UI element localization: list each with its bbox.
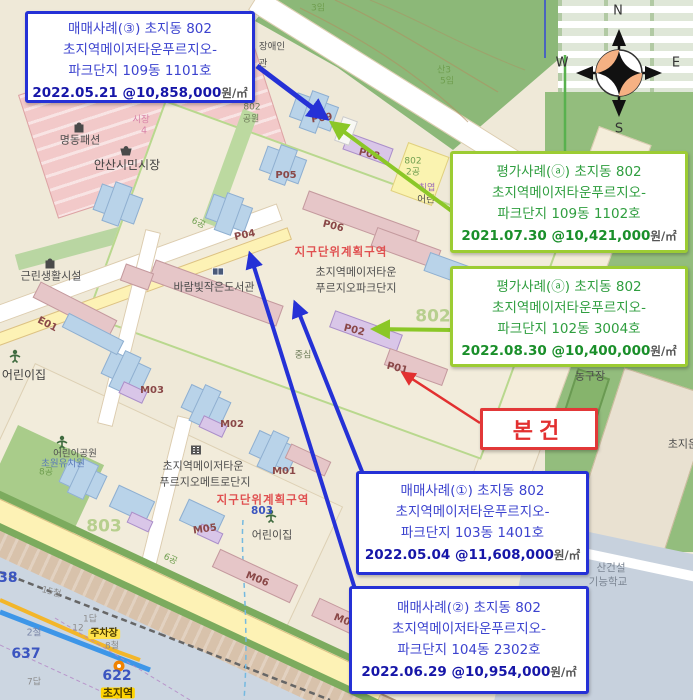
arrow-eval-102: [374, 329, 452, 330]
subject-label: 본건: [513, 413, 565, 445]
callout-line: 초지역메이저타운푸르지오-: [453, 183, 685, 204]
compass-n-label: N: [613, 4, 623, 19]
arrow-eval-109: [332, 123, 453, 212]
callout-eval-102: 평가사례(ⓐ) 초지동 802 초지역메이저타운푸르지오- 파크단지 102동 …: [450, 266, 688, 367]
callout-title: 평가사례(ⓐ) 초지동 802: [453, 162, 685, 183]
callout-line: 초지역메이저타운푸르지오-: [453, 298, 685, 319]
callout-price: 2021.07.30 @10,421,000원/㎡: [453, 225, 685, 247]
callout-title: 매매사례(②) 초지동 802: [352, 598, 586, 619]
compass-e-label: E: [672, 56, 680, 71]
callout-subject: 본건: [480, 408, 598, 450]
arrow-sale3: [257, 66, 326, 118]
callout-line: 파크단지 104동 2302호: [352, 640, 586, 661]
callout-line: 파크단지 109동 1101호: [28, 61, 252, 82]
arrow-sale1: [295, 303, 363, 474]
callout-sale-3: 매매사례(③) 초지동 802 초지역메이저타운푸르지오- 파크단지 109동 …: [25, 11, 255, 103]
compass-w-label: W: [556, 56, 569, 71]
arrow-sale2: [250, 254, 355, 589]
appraisal-map[interactable]: 3임산35임장애인관시장4명동패션안산시민시장802공원P09P08P05P06…: [0, 0, 693, 700]
callout-price: 2022.08.30 @10,400,000원/㎡: [453, 340, 685, 362]
compass-s-label: S: [615, 122, 623, 137]
callout-title: 평가사례(ⓐ) 초지동 802: [453, 277, 685, 298]
callout-line: 초지역메이저타운푸르지오-: [28, 40, 252, 61]
callout-line: 초지역메이저타운푸르지오-: [359, 502, 586, 523]
callout-price: 2022.05.21 @10,858,000원/㎡: [28, 82, 252, 104]
callout-line: 파크단지 102동 3004호: [453, 319, 685, 340]
callout-eval-109: 평가사례(ⓐ) 초지동 802 초지역메이저타운푸르지오- 파크단지 109동 …: [450, 151, 688, 253]
compass-rose-icon: [555, 13, 693, 138]
callout-line: 초지역메이저타운푸르지오-: [352, 619, 586, 640]
callout-title: 매매사례(①) 초지동 802: [359, 481, 586, 502]
callout-line: 파크단지 109동 1102호: [453, 204, 685, 225]
callout-line: 파크단지 103동 1401호: [359, 523, 586, 544]
arrow-subject: [403, 373, 480, 423]
callout-price: 2022.05.04 @11,608,000원/㎡: [359, 544, 586, 566]
callout-sale-1: 매매사례(①) 초지동 802 초지역메이저타운푸르지오- 파크단지 103동 …: [356, 471, 589, 575]
callout-title: 매매사례(③) 초지동 802: [28, 19, 252, 40]
callout-sale-2: 매매사례(②) 초지동 802 초지역메이저타운푸르지오- 파크단지 104동 …: [349, 586, 589, 694]
callout-price: 2022.06.29 @10,954,000원/㎡: [352, 661, 586, 683]
